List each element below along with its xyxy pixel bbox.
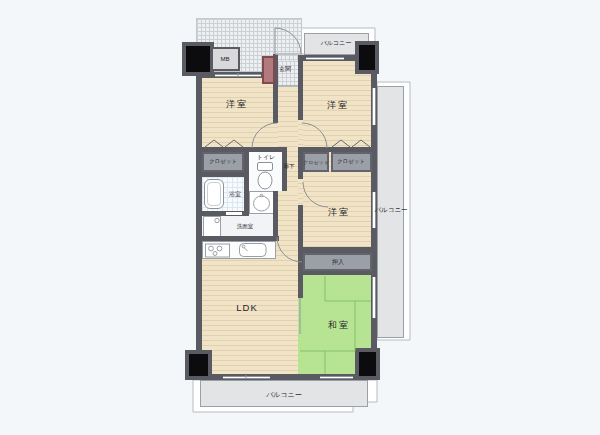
vanity-basin (254, 196, 270, 211)
toilet-bowl (258, 172, 272, 189)
label-hallway: 廊下 (284, 164, 295, 170)
label-balcony-right: バルコニー (374, 207, 407, 214)
plan-symbols (0, 0, 600, 435)
label-entrance: 玄関 (279, 66, 291, 72)
door-arc-room2 (302, 123, 327, 148)
door-arc-ldk (277, 237, 302, 262)
room-label-west-middle: 洋室 (328, 208, 350, 217)
folding-door-mark (205, 140, 223, 147)
floor-plan: 洋室 洋室 洋室 和室 LDK 廊下 玄関 トイレ 浴室 洗面室 クロゼット ク… (0, 0, 600, 435)
room-label-ldk: LDK (236, 303, 257, 313)
label-futon-closet: 押入 (332, 259, 344, 265)
folding-door-mark (332, 140, 350, 147)
label-balcony-bottom: バルコニー (266, 391, 302, 398)
label-meter-box: MB (221, 56, 230, 62)
label-balcony-top: バルコニー (321, 40, 352, 46)
door-arc-room3 (303, 182, 328, 207)
washer-drain (215, 218, 219, 222)
label-closet-middle: クロゼット (303, 160, 329, 165)
door-arc-room1 (252, 123, 277, 148)
label-closet-left: クロゼット (209, 159, 237, 165)
room-label-west-top-right: 洋室 (327, 101, 349, 110)
label-closet-right: クロゼット (337, 159, 365, 165)
room-label-japanese: 和室 (328, 321, 350, 330)
label-washroom: 洗面室 (237, 224, 254, 230)
folding-door-mark (225, 140, 243, 147)
folding-door-mark (352, 140, 370, 147)
label-toilet: トイレ (257, 154, 275, 160)
entrance-door-arc (275, 28, 301, 54)
label-bathroom: 浴室 (229, 191, 241, 197)
room-label-west-top-left: 洋室 (226, 100, 248, 109)
